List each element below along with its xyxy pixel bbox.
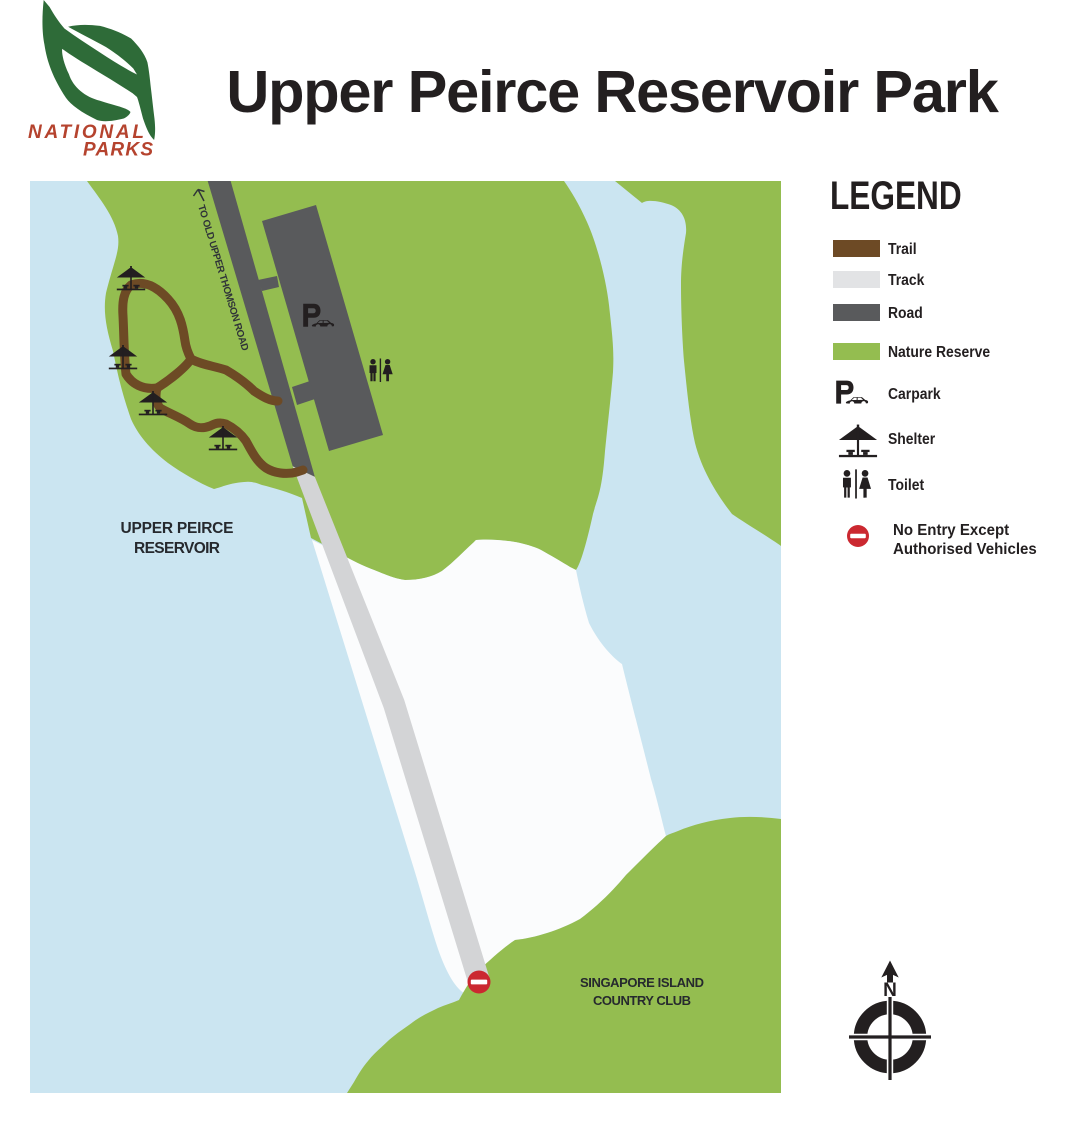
svg-text:UPPER PEIRCE: UPPER PEIRCE <box>121 520 234 537</box>
svg-text:COUNTRY CLUB: COUNTRY CLUB <box>593 993 691 1008</box>
svg-text:PARKS: PARKS <box>83 140 153 161</box>
svg-text:RESERVOIR: RESERVOIR <box>134 540 220 557</box>
svg-text:SINGAPORE ISLAND: SINGAPORE ISLAND <box>580 975 704 990</box>
